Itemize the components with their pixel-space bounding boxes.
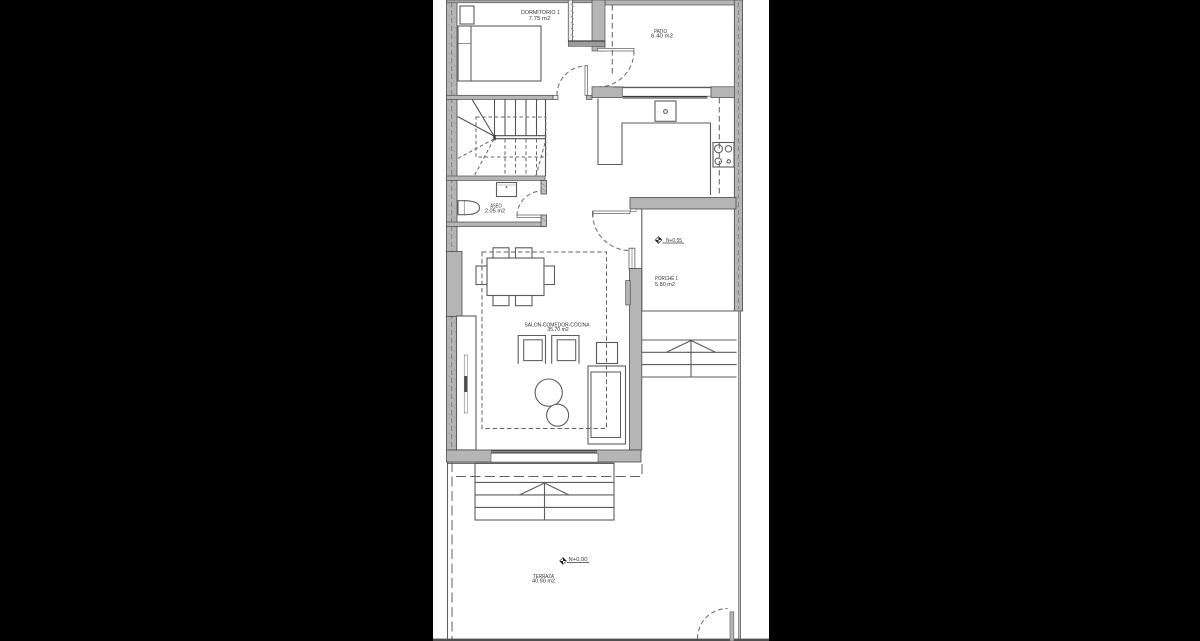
svg-text:40.90 m2: 40.90 m2 <box>532 578 555 584</box>
svg-text:7.75 m2: 7.75 m2 <box>529 16 551 22</box>
svg-text:5.80 m2: 5.80 m2 <box>655 282 675 288</box>
svg-text:2.05 m2: 2.05 m2 <box>485 208 505 214</box>
svg-text:N+0.00: N+0.00 <box>569 557 588 563</box>
svg-text:35.70 m2: 35.70 m2 <box>547 327 569 333</box>
svg-text:6.40 m2: 6.40 m2 <box>651 34 673 40</box>
svg-text:N+0.55: N+0.55 <box>666 238 682 244</box>
